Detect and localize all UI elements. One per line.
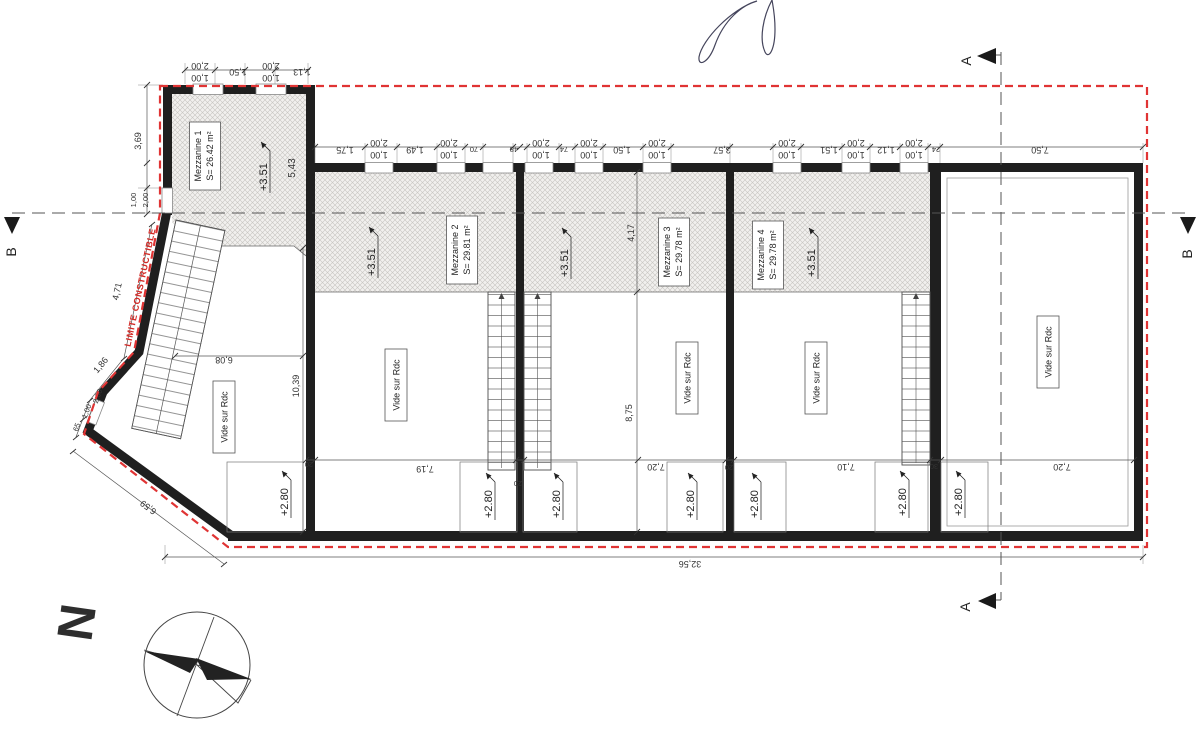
dim-text: 1,75 <box>336 145 354 155</box>
dim-text: 2,00 <box>847 138 865 148</box>
dim-text: 10,39 <box>291 375 301 398</box>
dim-text: 2,00 <box>262 61 280 71</box>
dim-text: 30 <box>930 462 938 471</box>
section-letter-b: B <box>3 247 19 256</box>
svg-text:Mezzanine 2: Mezzanine 2 <box>450 224 460 275</box>
svg-text:Mezzanine 1: Mezzanine 1 <box>193 130 203 181</box>
dim-text: 1,00 <box>370 150 388 160</box>
svg-text:S= 26.42 m²: S= 26.42 m² <box>205 131 215 180</box>
vide-label-unit3: Vide sur Rdc <box>676 342 698 414</box>
section-arrow-a-top <box>977 48 996 64</box>
window-opening <box>162 188 173 213</box>
dim-text: 7,19 <box>416 464 434 474</box>
dim-text: 3,69 <box>133 132 143 150</box>
svg-text:Mezzanine 3: Mezzanine 3 <box>662 226 672 277</box>
mezzanine-3-label: Mezzanine 3 S= 29.78 m² <box>659 218 690 286</box>
mezzanine-1-label: Mezzanine 1 S= 26.42 m² <box>190 122 221 190</box>
svg-text:+2.80: +2.80 <box>749 490 761 518</box>
level-label-lower: +2.80 <box>749 473 761 520</box>
dim-text: 7,50 <box>1031 145 1049 155</box>
window-opening <box>842 163 870 174</box>
dim-text: 1,00 <box>129 193 138 208</box>
room-box <box>227 462 303 532</box>
dim-text: 2,00 <box>778 138 796 148</box>
section-arrow-b-left <box>4 217 20 234</box>
north-label: N <box>46 600 106 644</box>
north-compass: N <box>46 600 251 718</box>
window-opening <box>483 163 513 174</box>
svg-text:S= 29.78 m²: S= 29.78 m² <box>768 230 778 279</box>
hatch-mezzanine-2 <box>315 172 516 292</box>
dim-text: 1,13 <box>293 67 311 77</box>
dim-text: 2,00 <box>580 138 598 148</box>
svg-text:+3.51: +3.51 <box>806 249 818 277</box>
dim-text: 1,00 <box>191 73 209 83</box>
room-box <box>523 462 577 532</box>
svg-text:+2.80: +2.80 <box>483 490 495 518</box>
dim-text: 2,00 <box>440 138 458 148</box>
svg-text:S= 29.78 m²: S= 29.78 m² <box>674 227 684 276</box>
window-opening <box>437 163 465 174</box>
dim-text: 20 <box>725 463 733 472</box>
svg-text:S= 29.81 m²: S= 29.81 m² <box>462 225 472 274</box>
window-opening <box>900 163 928 174</box>
dim-text: 2,00 <box>191 61 209 71</box>
dim-text: 1,00 <box>778 150 796 160</box>
dim-text: 1,12 <box>877 145 895 155</box>
signature-scribble <box>699 0 775 63</box>
dim-text: 1,00 <box>648 150 666 160</box>
dim-text: 1,50 <box>613 145 631 155</box>
svg-text:Vide sur Rdc: Vide sur Rdc <box>220 391 230 443</box>
vide-label-unit5: Vide sur Rdc <box>1037 316 1059 388</box>
dim-text: 7,20 <box>1053 462 1071 472</box>
mezzanine-2-label: Mezzanine 2 S= 29.81 m² <box>447 216 478 284</box>
dim-text: 20 <box>305 460 313 469</box>
dim-text: 65 <box>71 422 82 433</box>
stair-unit4 <box>902 292 930 465</box>
vide-label-unit2: Vide sur Rdc <box>385 349 407 421</box>
dim-text: 20 <box>514 479 522 488</box>
dim-text: 3,57 <box>713 145 731 155</box>
dim-text: 1,51 <box>820 145 838 155</box>
dim-text: 1,86 <box>91 355 110 375</box>
level-label-lower: +2.80 <box>953 471 965 518</box>
dim-text: 1,49 <box>406 145 424 155</box>
svg-text:+2.80: +2.80 <box>279 488 291 516</box>
floor-plan-drawing: 2,00 1,00 1,50 2,00 1,00 1,13 1,75 2,00 … <box>0 0 1200 749</box>
compass-needle-east <box>196 658 251 680</box>
dim-text: 24 <box>932 145 940 154</box>
dim-text: 48 <box>510 145 518 154</box>
svg-text:Vide sur Rdc: Vide sur Rdc <box>1044 326 1054 378</box>
level-label-lower: +2.80 <box>279 471 291 518</box>
window-opening <box>525 163 553 174</box>
svg-text:+2.80: +2.80 <box>953 488 965 516</box>
dim-text: 2,00 <box>141 193 150 208</box>
level-label-lower: +2.80 <box>897 471 909 518</box>
section-arrow-b-right <box>1180 217 1196 234</box>
svg-text:Vide sur Rdc: Vide sur Rdc <box>683 352 693 404</box>
window-opening <box>365 163 393 174</box>
level-label-lower: +2.80 <box>483 473 495 520</box>
window-opening <box>575 163 603 174</box>
dim-text: 8,75 <box>624 404 634 422</box>
mezzanine-4-label: Mezzanine 4 S= 29.78 m² <box>753 221 784 289</box>
section-arrow-a-bottom <box>978 593 996 609</box>
svg-text:Mezzanine 4: Mezzanine 4 <box>756 229 766 280</box>
svg-text:+3.51: +3.51 <box>258 163 270 191</box>
dim-text: 1,00 <box>905 150 923 160</box>
svg-text:Vide sur Rdc: Vide sur Rdc <box>392 359 402 411</box>
section-letter-a: A <box>958 56 974 66</box>
dim-text: 1,00 <box>262 73 280 83</box>
dim-text: 70 <box>470 145 478 154</box>
dim-text: 1,50 <box>229 67 247 77</box>
window-opening <box>643 163 671 174</box>
svg-text:+2.80: +2.80 <box>685 490 697 518</box>
vide-label-unit4: Vide sur Rdc <box>805 342 827 414</box>
dim-text: 4,71 <box>110 282 123 301</box>
level-label-lower: +2.80 <box>685 473 697 520</box>
dim-text: 1,00 <box>440 150 458 160</box>
svg-text:Vide sur Rdc: Vide sur Rdc <box>812 352 822 404</box>
svg-text:+2.80: +2.80 <box>551 490 563 518</box>
dim-text: 2,00 <box>905 138 923 148</box>
hatch-mezzanine-3 <box>524 172 726 292</box>
dim-text: 1,00 <box>847 150 865 160</box>
lower-level-boxes <box>227 462 988 532</box>
dim-text: 4,17 <box>626 224 636 242</box>
dim-text: 32,56 <box>679 559 702 569</box>
vide-label-unit1: Vide sur Rdc <box>213 381 235 453</box>
svg-text:+2.80: +2.80 <box>897 488 909 516</box>
dim-text: 2,00 <box>648 138 666 148</box>
dim-text: 74 <box>560 145 568 154</box>
dim-text: 1,00 <box>580 150 598 160</box>
stair-unit2 <box>488 292 515 470</box>
dim-text: 7,10 <box>837 462 855 472</box>
window-opening <box>773 163 801 174</box>
dim-text: 7,20 <box>647 462 665 472</box>
svg-text:+3.51: +3.51 <box>366 248 378 276</box>
floor-plan-page: 2,00 1,00 1,50 2,00 1,00 1,13 1,75 2,00 … <box>0 0 1200 749</box>
dim-text: 2,00 <box>532 138 550 148</box>
compass-needle-west <box>144 651 199 673</box>
section-letter-a: A <box>957 602 973 612</box>
svg-text:+3.51: +3.51 <box>559 249 571 277</box>
dim-text: 6,08 <box>215 355 233 365</box>
dim-text: 5,43 <box>287 158 298 178</box>
dim-text: 2,00 <box>370 138 388 148</box>
dim-text: 6,59 <box>138 498 158 517</box>
dim-text: 1,00 <box>532 150 550 160</box>
section-letter-b: B <box>1179 249 1195 258</box>
stair-unit3 <box>524 292 551 470</box>
level-label-lower: +2.80 <box>551 473 563 520</box>
